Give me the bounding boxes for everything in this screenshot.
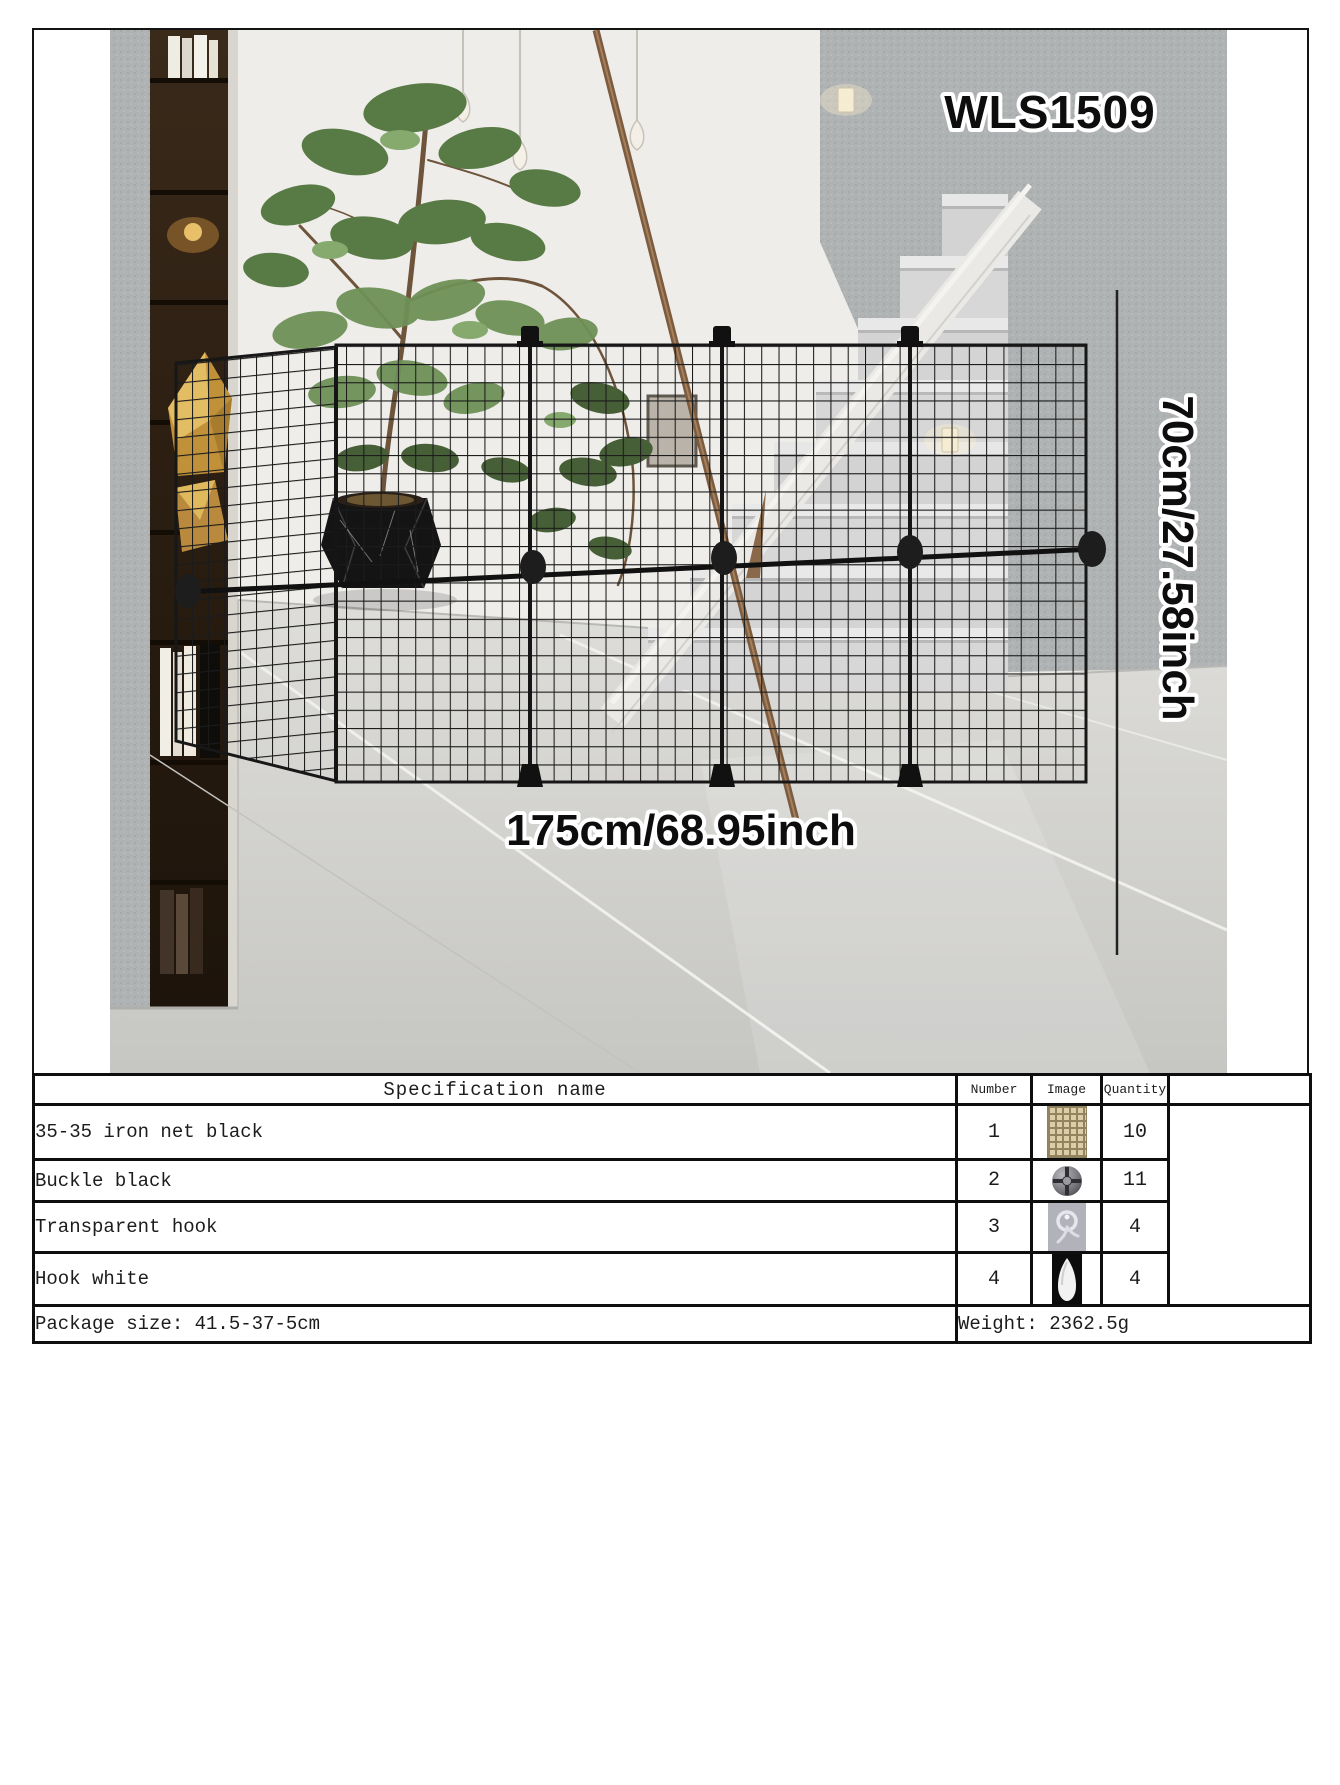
- product-spec-page: WLS1509 175cm/68.95inch 70cm/27.58inch S…: [0, 0, 1340, 1785]
- header-image: Image: [1032, 1075, 1102, 1105]
- row-image-cell: [1032, 1253, 1102, 1306]
- width-dimension-label: 175cm/68.95inch: [506, 806, 856, 855]
- row-number: 2: [957, 1160, 1032, 1202]
- product-photo: WLS1509 175cm/68.95inch 70cm/27.58inch: [110, 30, 1227, 1073]
- row-name: Hook white: [34, 1253, 957, 1306]
- weight-label: Weight: 2362.5g: [957, 1306, 1311, 1343]
- row-number: 3: [957, 1202, 1032, 1253]
- row-quantity: 11: [1102, 1160, 1169, 1202]
- empty-column-cell: [1169, 1105, 1311, 1306]
- row-name: Buckle black: [34, 1160, 957, 1202]
- header-quantity: Quantity: [1102, 1075, 1169, 1105]
- header-empty: [1169, 1075, 1311, 1105]
- specification-table: Specification name Number Image Quantity…: [32, 1073, 1309, 1344]
- row-quantity: 10: [1102, 1105, 1169, 1160]
- row-name: 35-35 iron net black: [34, 1105, 957, 1160]
- package-size-label: Package size: 41.5-37-5cm: [34, 1306, 957, 1343]
- table-row: Hook white 4 4: [34, 1253, 1311, 1306]
- row-number: 1: [957, 1105, 1032, 1160]
- height-dimension-label: 70cm/27.58inch: [1153, 395, 1202, 720]
- row-image-cell: [1032, 1202, 1102, 1253]
- transparent-hook-swatch-icon: [1048, 1203, 1086, 1251]
- row-image-cell: [1032, 1160, 1102, 1202]
- table-row: 35-35 iron net black 1 10: [34, 1105, 1311, 1160]
- white-hook-swatch-icon: [1052, 1254, 1082, 1304]
- row-quantity: 4: [1102, 1202, 1169, 1253]
- table-row: Transparent hook 3 4: [34, 1202, 1311, 1253]
- table-header-row: Specification name Number Image Quantity: [34, 1075, 1311, 1105]
- model-label: WLS1509: [944, 86, 1156, 138]
- row-number: 4: [957, 1253, 1032, 1306]
- header-specification-name: Specification name: [34, 1075, 957, 1105]
- row-quantity: 4: [1102, 1253, 1169, 1306]
- iron-net-swatch-icon: [1047, 1106, 1087, 1158]
- row-name: Transparent hook: [34, 1202, 957, 1253]
- buckle-swatch-icon: [1050, 1164, 1084, 1198]
- row-image-cell: [1032, 1105, 1102, 1160]
- table-row: Buckle black 2 11: [34, 1160, 1311, 1202]
- left-wall: [110, 30, 152, 1008]
- table-footer-row: Package size: 41.5-37-5cm Weight: 2362.5…: [34, 1306, 1311, 1343]
- header-number: Number: [957, 1075, 1032, 1105]
